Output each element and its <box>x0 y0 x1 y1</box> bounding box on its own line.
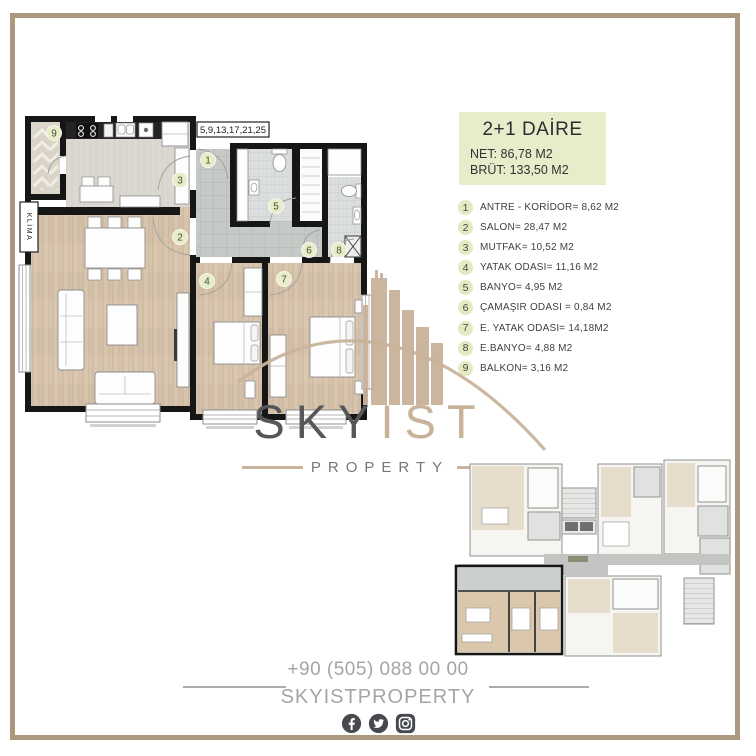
svg-text:2: 2 <box>177 233 183 244</box>
floors-label: 5,9,13,17,21,25 <box>200 125 266 136</box>
room-marker-9: 9 <box>47 126 62 141</box>
toilet <box>272 149 287 172</box>
window <box>19 265 30 372</box>
unit-info-box: 2+1 DAİRE NET: 86,78 M2 BRÜT: 133,50 M2 <box>459 112 606 185</box>
kitchen-window <box>95 116 111 122</box>
svg-text:4: 4 <box>204 277 210 288</box>
divider-line <box>242 466 303 469</box>
bathtub <box>237 149 248 221</box>
room-number-badge: 3 <box>458 240 473 255</box>
room-label: SALON= 28,47 M2 <box>480 222 567 233</box>
bathroom-sink <box>249 180 259 195</box>
klima-box: KLİMA <box>20 202 38 252</box>
room-list-item: 1ANTRE - KORİDOR= 8,62 M2 <box>458 200 688 215</box>
room-marker-5: 5 <box>269 199 284 214</box>
floors-label-box: 5,9,13,17,21,25 <box>197 122 269 137</box>
room-marker-2: 2 <box>173 230 188 245</box>
room-label: MUTFAK= 10,52 M2 <box>480 242 574 253</box>
room-number-badge: 2 <box>458 220 473 235</box>
facebook-icon[interactable] <box>341 713 362 734</box>
coffee-table <box>107 305 137 345</box>
cooktop-2 <box>139 123 153 137</box>
room-marker-6: 6 <box>302 243 317 258</box>
social-icons <box>0 713 756 734</box>
brand-primary: SKY <box>253 395 380 448</box>
room-marker-1: 1 <box>201 153 216 168</box>
brand-wordmark: SKYIST <box>230 398 510 446</box>
flyer-canvas: KLİMA 5,9,13,17,21,25 1 2 3 4 5 6 7 8 9 … <box>0 0 756 756</box>
brand-handle: SKYISTPROPERTY <box>0 686 756 709</box>
brand-subtitle: PROPERTY <box>303 459 457 476</box>
room-list-item: 3MUTFAK= 10,52 M2 <box>458 240 688 255</box>
key-plan <box>448 458 744 662</box>
kitchen-peninsula <box>120 196 160 207</box>
room-list-item: 2SALON= 28,47 M2 <box>458 220 688 235</box>
brand-secondary: IST <box>380 395 486 448</box>
stove <box>76 123 98 138</box>
room-marker-8: 8 <box>332 243 347 258</box>
svg-text:9: 9 <box>51 129 57 140</box>
room-marker-3: 3 <box>173 173 188 188</box>
svg-text:3: 3 <box>177 176 183 187</box>
kitchen-window <box>117 116 133 122</box>
room-number-badge: 1 <box>458 200 473 215</box>
ensuite-cabinet <box>328 149 361 175</box>
cutting-board <box>104 124 113 137</box>
svg-text:8: 8 <box>336 246 342 257</box>
ensuite-sink <box>353 207 361 224</box>
sofa-two-seat <box>95 372 155 404</box>
klima-label: KLİMA <box>25 213 34 242</box>
instagram-icon[interactable] <box>395 713 416 734</box>
kitchen-sink <box>116 123 135 137</box>
unit-net-area: NET: 86,78 M2 <box>470 146 606 162</box>
sofa-three-seat <box>58 290 84 370</box>
unit-title: 2+1 DAİRE <box>459 119 606 141</box>
building-icon <box>363 270 443 405</box>
unit-gross-area: BRÜT: 133,50 M2 <box>470 162 606 178</box>
room-marker-4: 4 <box>200 274 215 289</box>
twitter-icon[interactable] <box>368 713 389 734</box>
room-label: ANTRE - KORİDOR= 8,62 M2 <box>480 202 619 213</box>
svg-text:1: 1 <box>205 156 211 167</box>
phone-number: +90 (505) 088 00 00 <box>0 659 756 681</box>
svg-text:5: 5 <box>273 202 279 213</box>
bay-window <box>86 404 160 427</box>
svg-text:6: 6 <box>306 246 312 257</box>
highlighted-unit <box>456 566 562 654</box>
dining-set <box>85 217 145 280</box>
